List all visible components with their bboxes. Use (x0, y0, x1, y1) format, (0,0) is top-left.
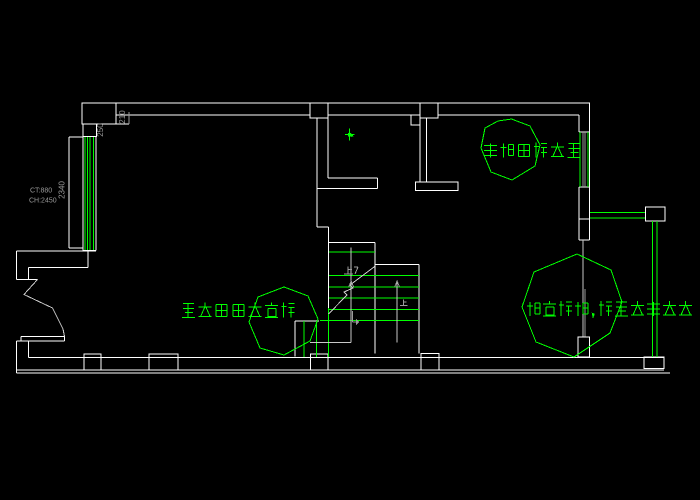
svg-text:CH:2450: CH:2450 (29, 198, 57, 205)
svg-text:2340: 2340 (58, 181, 67, 199)
svg-text:210: 210 (118, 110, 127, 124)
svg-text:CT:880: CT:880 (30, 188, 52, 195)
svg-text:250: 250 (96, 123, 105, 137)
